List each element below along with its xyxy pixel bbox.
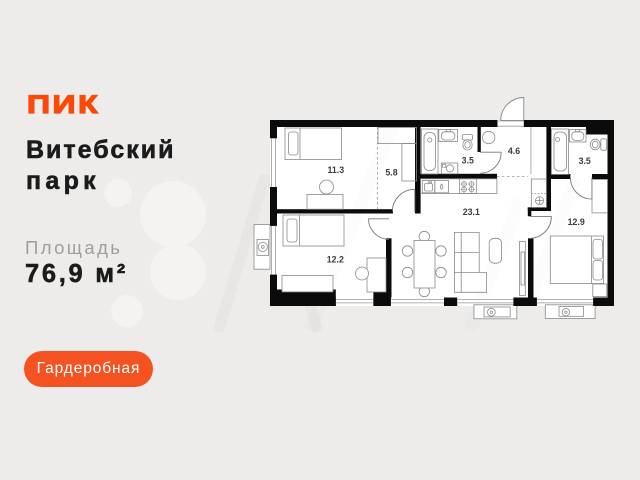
svg-text:5.8: 5.8	[385, 167, 397, 177]
svg-text:23.1: 23.1	[463, 207, 480, 217]
svg-text:3.5: 3.5	[462, 156, 474, 166]
svg-text:3.5: 3.5	[579, 156, 591, 166]
svg-text:12.2: 12.2	[327, 254, 344, 264]
svg-text:11.3: 11.3	[327, 165, 344, 175]
svg-text:4.6: 4.6	[508, 146, 520, 156]
svg-text:12.9: 12.9	[568, 217, 585, 227]
